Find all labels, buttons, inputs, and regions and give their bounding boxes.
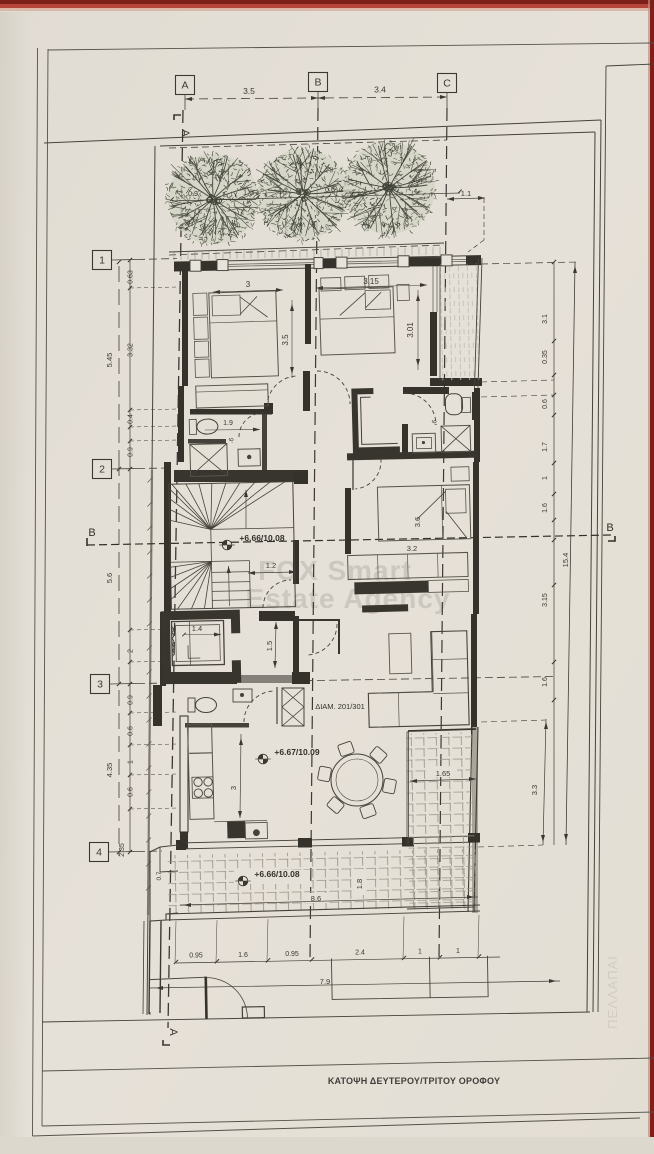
svg-text:ΔΙΑΜ. 201/301: ΔΙΑΜ. 201/301: [315, 702, 365, 711]
svg-text:1.7: 1.7: [542, 442, 549, 452]
svg-text:0.9: 0.9: [128, 695, 135, 705]
svg-text:ΠΕΛΛΑΠΑΙ: ΠΕΛΛΑΠΑΙ: [605, 955, 620, 1029]
svg-text:1: 1: [418, 949, 422, 956]
svg-text:+6.67/10.09: +6.67/10.09: [274, 747, 319, 757]
svg-text:1: 1: [456, 948, 460, 955]
svg-text:2.4: 2.4: [355, 950, 365, 957]
svg-text:4: 4: [96, 846, 102, 858]
svg-text:A: A: [179, 129, 191, 137]
svg-text:B: B: [314, 76, 321, 88]
svg-text:4.35: 4.35: [105, 763, 114, 778]
svg-text:0.95: 0.95: [189, 953, 203, 960]
svg-text:1.6: 1.6: [542, 677, 549, 687]
svg-text:3.2: 3.2: [407, 544, 417, 553]
svg-text:15.4: 15.4: [561, 553, 570, 568]
svg-text:5.45: 5.45: [105, 353, 114, 368]
svg-text:3.4: 3.4: [374, 85, 386, 95]
svg-text:B: B: [88, 527, 95, 539]
svg-text:1: 1: [99, 254, 105, 266]
svg-text:A: A: [167, 1028, 179, 1036]
svg-text:1.6: 1.6: [243, 190, 253, 197]
svg-text:ΚΑΤΟΨΗ ΔΕΥΤΕΡΟΥ/ΤΡΙΤΟΥ ΟΡΟΦΟ: ΚΑΤΟΨΗ ΔΕΥΤΕΡΟΥ/ΤΡΙΤΟΥ ΟΡΟΦΟΥ: [328, 1076, 500, 1086]
svg-text:+6.66/10.08: +6.66/10.08: [239, 533, 284, 543]
svg-text:3.01: 3.01: [406, 322, 415, 338]
svg-text:3: 3: [229, 786, 238, 790]
svg-text:1.1: 1.1: [278, 189, 288, 196]
svg-text:0.95: 0.95: [285, 951, 299, 958]
svg-text:0.9: 0.9: [128, 447, 135, 457]
svg-text:3: 3: [97, 678, 103, 690]
svg-text:1.6: 1.6: [238, 952, 248, 959]
svg-text:1.4: 1.4: [192, 624, 202, 633]
svg-text:1: 1: [542, 476, 549, 480]
svg-text:0.6: 0.6: [128, 726, 135, 736]
svg-text:0.6: 0.6: [325, 187, 335, 194]
svg-text:5.6: 5.6: [105, 573, 114, 583]
svg-text:1.65: 1.65: [436, 769, 451, 778]
svg-text:1.6: 1.6: [542, 503, 549, 513]
svg-text:0.35: 0.35: [542, 350, 549, 364]
svg-text:C: C: [443, 77, 451, 89]
svg-text:0.4: 0.4: [128, 414, 135, 424]
svg-text:FOX Smart: FOX Smart: [258, 555, 412, 586]
svg-text:A: A: [181, 79, 188, 91]
svg-text:7.9: 7.9: [320, 977, 330, 986]
svg-text:3.1: 3.1: [542, 314, 549, 324]
svg-text:+6.66/10.08: +6.66/10.08: [254, 869, 299, 879]
svg-text:3.5: 3.5: [243, 86, 255, 96]
svg-text:3.15: 3.15: [363, 277, 379, 286]
svg-text:3.32: 3.32: [128, 343, 135, 357]
svg-text:3.6: 3.6: [413, 517, 422, 527]
svg-text:0.6: 0.6: [128, 787, 135, 797]
svg-text:1.5: 1.5: [265, 641, 274, 651]
svg-text:1.9: 1.9: [223, 420, 233, 427]
svg-text:1.2: 1.2: [266, 561, 276, 570]
svg-text:0.7: 0.7: [156, 871, 163, 880]
svg-text:1: 1: [128, 760, 135, 764]
svg-text:3.3: 3.3: [530, 785, 539, 795]
svg-text:3.5: 3.5: [281, 334, 290, 346]
svg-text:2: 2: [99, 463, 105, 475]
svg-text:1.1: 1.1: [461, 189, 471, 198]
svg-text:3.15: 3.15: [542, 593, 549, 607]
svg-text:0.9: 0.9: [188, 191, 198, 198]
svg-text:1.8: 1.8: [355, 879, 364, 889]
svg-text:3: 3: [246, 280, 251, 289]
svg-text:0.6: 0.6: [542, 399, 549, 409]
svg-text:2.55: 2.55: [383, 185, 397, 192]
svg-text:2.35: 2.35: [119, 843, 126, 857]
svg-text:2: 2: [128, 649, 135, 653]
svg-text:0.63: 0.63: [128, 270, 135, 284]
svg-text:B: B: [606, 522, 613, 534]
